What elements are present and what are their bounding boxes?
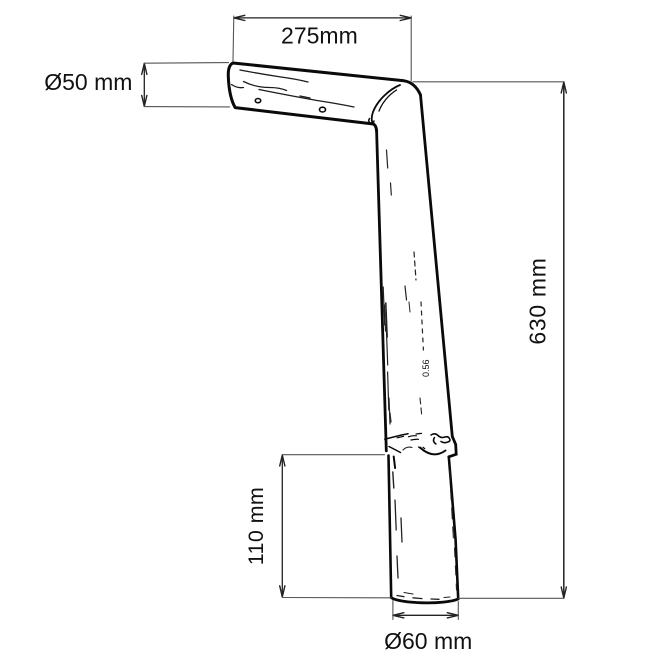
- svg-text:Ø50 mm: Ø50 mm: [44, 69, 132, 95]
- svg-text:275mm: 275mm: [281, 23, 358, 49]
- svg-text:110 mm: 110 mm: [244, 487, 268, 565]
- svg-text:Ø60 mm: Ø60 mm: [384, 628, 472, 654]
- svg-text:630 mm: 630 mm: [525, 257, 551, 344]
- svg-text:0.56: 0.56: [421, 359, 431, 377]
